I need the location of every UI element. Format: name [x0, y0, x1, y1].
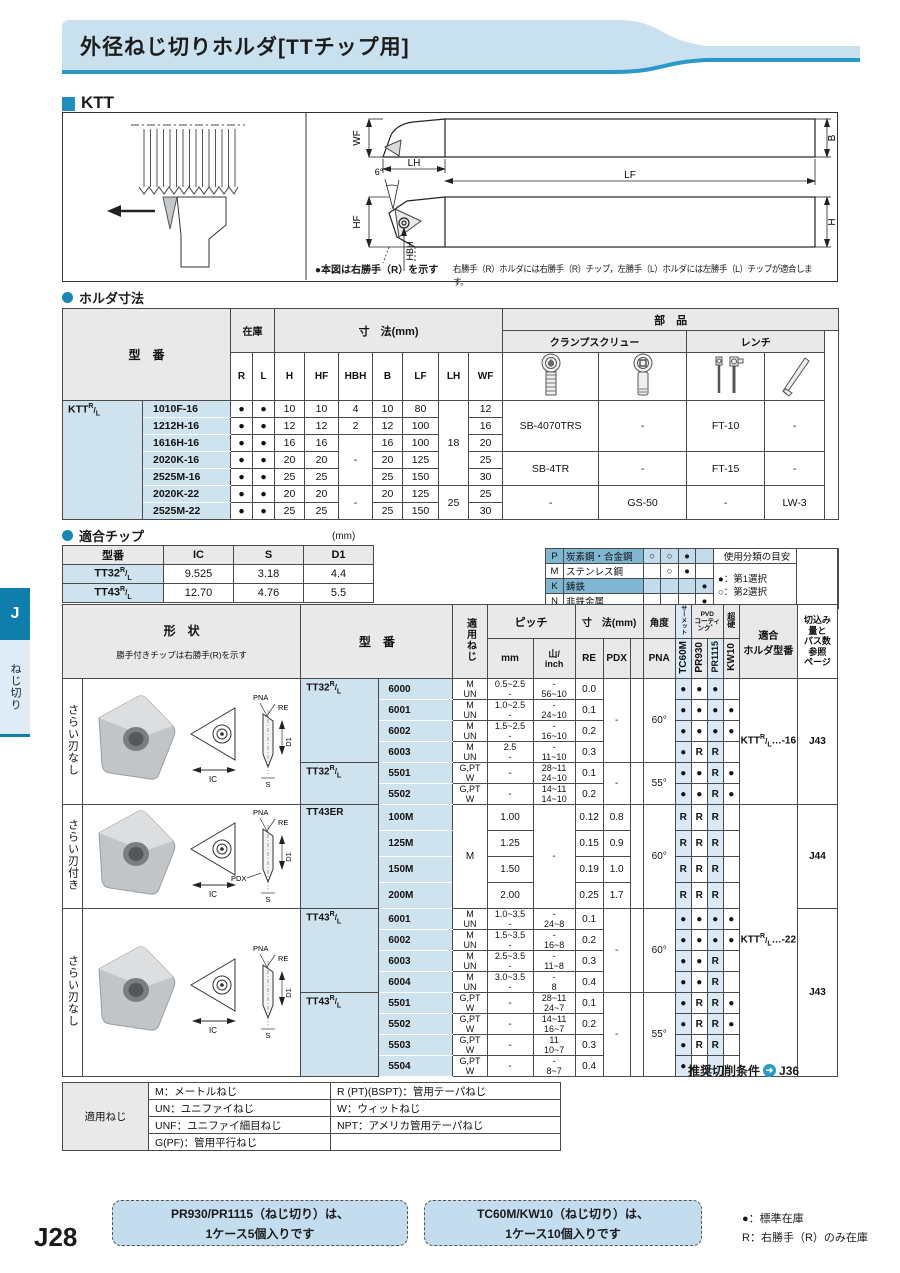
- table-cell: 25: [373, 503, 403, 520]
- element: RE: [278, 818, 288, 827]
- table-cell: 20: [275, 452, 305, 469]
- table-cell: [723, 679, 739, 700]
- table-cell: 16: [305, 435, 339, 452]
- table-cell: R: [675, 831, 691, 857]
- chip-model-prefix: TT32RL: [301, 763, 379, 805]
- element: R: [330, 681, 335, 688]
- element: [220, 847, 224, 851]
- table-cell: ●: [253, 469, 275, 486]
- table-cell: 10: [275, 401, 305, 418]
- element: 量と: [798, 626, 837, 637]
- torx-screw-icon: [503, 353, 599, 401]
- note-box-pr930: PR930/PR1115（ねじ切り）は、1ケース5個入りです: [112, 1200, 408, 1246]
- table-cell: [661, 579, 679, 594]
- table-cell: 0.8: [603, 805, 630, 831]
- table-row: 適用ねじ M：メートルねじR (PT)(BSPT)：管用テーパねじ: [63, 1083, 561, 1100]
- table-cell: [723, 972, 739, 993]
- table-cell: 60°: [643, 805, 675, 909]
- element: 16~10: [534, 731, 575, 741]
- element: [445, 197, 815, 247]
- table-cell: D1: [304, 546, 374, 565]
- table-cell: ●: [675, 993, 691, 1014]
- arrow-icon: ➜: [763, 1064, 776, 1077]
- table-cell: ●: [231, 503, 253, 520]
- element: TT32: [306, 766, 329, 777]
- element: -: [534, 700, 575, 710]
- table-cell: 2.5~3.5-: [487, 951, 533, 972]
- element: L: [337, 688, 341, 695]
- table-cell: -: [599, 452, 687, 486]
- element: 11: [534, 1035, 575, 1045]
- ktt-section-title: KTT: [81, 93, 114, 113]
- element: [386, 185, 397, 186]
- table-cell: 型 番: [301, 605, 453, 679]
- section-bullet-icon: [62, 292, 73, 303]
- table-row: さらい刃なし IC PNA RE D1 S TT43RL 6001 MUN 1.…: [63, 909, 838, 930]
- table-cell: 100: [403, 435, 439, 452]
- chip-model-prefix: TT43RL: [301, 993, 379, 1077]
- chip-model-prefix: TT43ER: [301, 805, 379, 909]
- table-cell: W：ウィットねじ: [331, 1100, 561, 1117]
- table-cell: [723, 883, 739, 909]
- table-cell: -: [603, 909, 630, 993]
- dim-lh: LH: [408, 158, 421, 169]
- element: M: [453, 700, 486, 710]
- table-cell: ●: [675, 1014, 691, 1035]
- table-cell: 型 番: [63, 309, 231, 401]
- element: PNA: [253, 944, 268, 953]
- table-cell: 9.525: [164, 565, 234, 584]
- table-cell: -24~8: [533, 909, 575, 930]
- element: KTT: [68, 404, 88, 416]
- element: PNA: [253, 693, 268, 702]
- table-cell: 60°: [643, 909, 675, 993]
- element: 適合: [758, 631, 778, 642]
- table-cell: 1616H-16: [143, 435, 231, 452]
- table-cell: 角度: [643, 605, 675, 639]
- insert-shape-images: IC PNA RE D1 S PDX: [83, 805, 301, 909]
- element: M: [453, 909, 486, 919]
- table-cell: 6002: [379, 721, 453, 742]
- table-cell: MUN: [453, 742, 487, 763]
- table-cell: R: [707, 883, 723, 909]
- pvd-header: PVDコーティンク゛: [691, 605, 723, 639]
- element: UN: [453, 919, 486, 929]
- table-cell: 在庫: [231, 309, 275, 353]
- table-cell: 4.76: [234, 584, 304, 603]
- element: [177, 197, 226, 267]
- table-cell: ●: [723, 784, 739, 805]
- table-cell: ●: [675, 930, 691, 951]
- table-cell: R: [231, 353, 253, 401]
- table-cell: ●: [691, 972, 707, 993]
- table-cell: ステンレス鋼: [564, 564, 644, 579]
- recommended-conditions-page: J36: [779, 1064, 799, 1078]
- table-cell: 5502: [379, 784, 453, 805]
- table-cell: J43: [797, 679, 837, 805]
- element: [247, 873, 261, 878]
- element: [128, 732, 143, 746]
- element: 切込み: [798, 615, 837, 626]
- table-cell: G,PTW: [453, 784, 487, 805]
- table-cell: FT-10: [687, 401, 765, 452]
- chip-selection-table: 形 状勝手付きチップは右勝手(R)を示す 型 番 適用ねじ ピッチ 寸 法(mm…: [62, 604, 838, 1077]
- table-cell: R: [707, 763, 723, 784]
- element: 24~7: [534, 1003, 575, 1013]
- element: M: [453, 951, 486, 961]
- table-cell: 12.70: [164, 584, 234, 603]
- table-cell: ●: [675, 1035, 691, 1056]
- table-cell: ●: [707, 930, 723, 951]
- element: RE: [278, 703, 288, 712]
- table-cell: PNA: [643, 639, 675, 679]
- element: M: [453, 721, 486, 731]
- table-cell: ●: [231, 418, 253, 435]
- table-cell: J43: [797, 909, 837, 1077]
- element: 勝手付きチップは右勝手(R)を示す: [63, 649, 300, 661]
- table-cell: [696, 549, 714, 564]
- table-row: 型 番 在庫 寸 法(mm) 部 品: [63, 309, 839, 331]
- table-cell: ●: [691, 700, 707, 721]
- table-cell: GS-50: [599, 486, 687, 520]
- table-cell: R: [707, 831, 723, 857]
- table-cell: ●: [723, 930, 739, 951]
- grade-pr930: PR930: [691, 639, 707, 679]
- table-cell: MUN: [453, 679, 487, 700]
- table-cell: R: [691, 1014, 707, 1035]
- element: 16~7: [534, 1024, 575, 1034]
- table-cell: 6003: [379, 742, 453, 763]
- table-cell: -: [487, 993, 533, 1014]
- table-cell: 1.0: [603, 857, 630, 883]
- element: [128, 847, 143, 861]
- table-cell: 150: [403, 469, 439, 486]
- element: 適用ねじ M：メートルねじR (PT)(BSPT)：管用テーパねじ UN：ユニフ…: [63, 1083, 561, 1151]
- table-cell: 6004: [379, 972, 453, 993]
- element: UN: [453, 961, 486, 971]
- table-cell: ●: [691, 721, 707, 742]
- insert-shape-drawing: IC PNA RE D1 S: [85, 690, 299, 790]
- table-cell: B: [373, 353, 403, 401]
- table-cell: 55°: [643, 763, 675, 805]
- element: 1.0~3.5: [488, 909, 533, 919]
- table-cell: 100M: [379, 805, 453, 831]
- table-cell: [630, 639, 643, 679]
- table-cell: 25: [305, 469, 339, 486]
- table-cell: ●: [675, 951, 691, 972]
- table-cell: [723, 951, 739, 972]
- chip-dimension-table: 型番ICSD1 TT32RL 9.5253.184.4 TT43RL 12.70…: [62, 545, 374, 603]
- element: -: [488, 731, 533, 741]
- element: UN: [453, 710, 486, 720]
- element: さらい刃なし: [65, 955, 81, 1027]
- element: [107, 205, 121, 217]
- table-cell: 1.5~3.5-: [487, 930, 533, 951]
- table-cell: 20: [275, 486, 305, 503]
- element: W: [453, 1003, 486, 1013]
- table-row: TT43RL 12.704.765.5: [63, 584, 374, 603]
- table-cell: IC: [164, 546, 234, 565]
- element: 型 番 在庫 寸 法(mm) 部 品 クランプスクリュー レンチ RL HHFH…: [63, 309, 839, 520]
- table-cell: ●: [253, 486, 275, 503]
- element: TT43: [306, 996, 329, 1007]
- table-cell: 部 品: [503, 309, 839, 331]
- element: UN: [453, 752, 486, 762]
- chip-section-heading: 適合チップ: [62, 526, 144, 545]
- table-cell: MUN: [453, 909, 487, 930]
- table-cell: ●: [253, 435, 275, 452]
- element: G,PT: [453, 1014, 486, 1024]
- element: L: [337, 772, 341, 779]
- cermet-header: サーメット: [675, 605, 691, 639]
- table-cell: レンチ: [687, 331, 825, 353]
- table-cell: [696, 564, 714, 579]
- table-cell: 鋳鉄: [564, 579, 644, 594]
- table-cell: 25: [275, 469, 305, 486]
- table-cell: 6001: [379, 909, 453, 930]
- element: G,PT: [453, 1056, 486, 1066]
- table-cell: 12: [305, 418, 339, 435]
- table-cell: MUN: [453, 930, 487, 951]
- element: P炭素鋼・合金鋼 ○○● 使用分類の目安 Mステンレス鋼 ○● ●：第1選択○：…: [546, 549, 839, 609]
- table-cell: G(PF)：管用平行ねじ: [149, 1134, 331, 1151]
- table-cell: -56~10: [533, 679, 575, 700]
- element: IC: [209, 890, 217, 899]
- table-cell: [723, 1035, 739, 1056]
- element: TT43: [94, 586, 120, 598]
- insert-shape-drawing: IC PNA RE D1 S: [85, 941, 299, 1041]
- element: S: [265, 1031, 270, 1040]
- table-cell: -11~8: [533, 951, 575, 972]
- diagram-note-left: ●本図は右勝手（R）を示す: [315, 261, 438, 276]
- chip-model: TT43RL: [63, 584, 164, 603]
- table-cell: ●: [691, 784, 707, 805]
- table-cell: R: [691, 1035, 707, 1056]
- table-cell: WF: [469, 353, 503, 401]
- element: KTT: [741, 736, 760, 747]
- table-cell: R: [691, 831, 707, 857]
- table-cell: 150: [403, 503, 439, 520]
- table-cell: 14~1116~7: [533, 1014, 575, 1035]
- element: -: [534, 742, 575, 752]
- table-cell: LH: [439, 353, 469, 401]
- table-cell: MUN: [453, 721, 487, 742]
- element: S: [265, 780, 270, 789]
- element: M: [453, 679, 486, 689]
- holder-model-prefix: KTTRL: [63, 401, 143, 520]
- element: ●：第1選択: [718, 574, 767, 585]
- element: -: [488, 982, 533, 992]
- table-cell: ●: [691, 763, 707, 784]
- table-cell: -24~10: [533, 700, 575, 721]
- element: UN: [453, 982, 486, 992]
- element: TT32: [94, 567, 120, 579]
- element: IC: [209, 775, 217, 784]
- chip-model-prefix: TT32RL: [301, 679, 379, 763]
- grade-kw10: KW10: [723, 639, 739, 679]
- table-cell: ●: [675, 972, 691, 993]
- element: サーメット: [679, 605, 688, 635]
- table-cell: 16: [275, 435, 305, 452]
- element: [385, 179, 393, 209]
- element: -: [534, 721, 575, 731]
- element: TT43: [306, 912, 329, 923]
- table-cell: 28~1124~7: [533, 993, 575, 1014]
- holder-section-title: ホルダ寸法: [79, 288, 144, 307]
- element: PVD: [701, 611, 714, 618]
- table-cell: ●: [675, 721, 691, 742]
- table-cell: ●: [675, 679, 691, 700]
- element: 56~10: [534, 689, 575, 699]
- element: -: [488, 961, 533, 971]
- table-cell: R: [707, 805, 723, 831]
- table-cell: ●: [707, 700, 723, 721]
- table-cell: 2020K-16: [143, 452, 231, 469]
- element: 1.0~2.5: [488, 700, 533, 710]
- table-cell: R: [707, 857, 723, 883]
- table-cell: P: [546, 549, 564, 564]
- element: 1ケース5個入りです: [206, 1227, 315, 1241]
- element: 1.5~3.5: [488, 930, 533, 940]
- element: [628, 353, 658, 397]
- table-cell: -16~10: [533, 721, 575, 742]
- table-cell: 30: [469, 503, 503, 520]
- table-cell: 5.5: [304, 584, 374, 603]
- element: さらい刃なし: [65, 704, 81, 776]
- note-box-tc60m: TC60M/KW10（ねじ切り）は、1ケース10個入りです: [424, 1200, 702, 1246]
- table-cell: R: [691, 883, 707, 909]
- element: パス数: [798, 636, 837, 647]
- table-cell: -: [599, 401, 687, 452]
- table-cell: J44: [797, 805, 837, 909]
- table-cell: 5504: [379, 1056, 453, 1077]
- table-cell: ●: [675, 742, 691, 763]
- table-cell: [679, 579, 696, 594]
- element: ねじ切り: [7, 663, 23, 711]
- table-cell: R: [707, 1014, 723, 1035]
- holder-diagram-box: WF B LH LF 6° HF HBH H ●本図は右勝手（R）を示す 右勝手…: [62, 112, 838, 282]
- table-cell: 5501: [379, 763, 453, 784]
- table-cell: 60°: [643, 679, 675, 763]
- table-cell: [644, 579, 661, 594]
- table-cell: 125: [403, 452, 439, 469]
- element: 適用ねじ: [463, 618, 478, 662]
- dim-hf: HF: [352, 215, 363, 228]
- table-cell: 0.12: [575, 805, 603, 831]
- table-cell: 0.1: [575, 909, 603, 930]
- element: 山/: [548, 649, 560, 659]
- table-cell: 0.1: [575, 763, 603, 784]
- table-row: TT32RL 9.5253.184.4: [63, 565, 374, 584]
- chip-unit-label: (mm): [332, 531, 355, 542]
- table-cell: G,PTW: [453, 1035, 487, 1056]
- table-cell: 25: [305, 503, 339, 520]
- table-cell: ●: [231, 486, 253, 503]
- page-number: J28: [34, 1222, 77, 1253]
- element: 3.0~3.5: [488, 972, 533, 982]
- table-cell: 0.1: [575, 993, 603, 1014]
- table-cell: -: [487, 763, 533, 784]
- table-cell: G,PTW: [453, 993, 487, 1014]
- table-cell: ○: [661, 564, 679, 579]
- top-view-dimensions: [369, 179, 831, 271]
- dim-hbh: HBH: [405, 241, 415, 260]
- element: [139, 187, 238, 194]
- table-cell: 炭素鋼・合金鋼: [564, 549, 644, 564]
- element: TT32: [306, 682, 329, 693]
- table-cell: -: [487, 1014, 533, 1035]
- table-cell: -: [603, 679, 630, 763]
- table-cell: ●: [231, 469, 253, 486]
- hex-socket-screw-icon: [599, 353, 687, 401]
- element: 28~11: [534, 763, 575, 773]
- element: TC60M/KW10（ねじ切り）は、: [477, 1207, 649, 1221]
- element: -: [488, 940, 533, 950]
- table-cell: 1010F-16: [143, 401, 231, 418]
- table-cell: ●: [253, 503, 275, 520]
- table-cell: 1.00: [487, 805, 533, 831]
- table-cell: ●: [679, 564, 696, 579]
- element: W: [453, 1045, 486, 1055]
- table-cell: FT-15: [687, 452, 765, 486]
- group-label: さらい刃付き: [63, 805, 83, 909]
- table-cell: ●: [723, 700, 739, 721]
- table-cell: R: [691, 993, 707, 1014]
- dim-h: H: [827, 218, 836, 225]
- shape-header: 形 状勝手付きチップは右勝手(R)を示す: [63, 605, 301, 679]
- table-cell: 1212H-16: [143, 418, 231, 435]
- table-cell: -: [765, 401, 825, 452]
- table-cell: UNF：ユニファイ細目ねじ: [149, 1117, 331, 1134]
- table-cell: 1.7: [603, 883, 630, 909]
- element: KTT: [741, 935, 760, 946]
- table-cell: RE: [575, 639, 603, 679]
- table-cell: M: [546, 564, 564, 579]
- element: M: [453, 742, 486, 752]
- element: 11~10: [534, 752, 575, 762]
- dim-b: B: [827, 134, 836, 141]
- stock-note-standard: ●：標準在庫: [742, 1210, 804, 1226]
- element: 1ケース10個入りです: [505, 1227, 620, 1241]
- table-cell: ●: [691, 909, 707, 930]
- table-cell: ●: [679, 549, 696, 564]
- element: PNA: [253, 808, 268, 817]
- element: [738, 359, 743, 363]
- element: L: [337, 1002, 341, 1009]
- table-cell: SB-4070TRS: [503, 401, 599, 452]
- table-cell: 0.1: [575, 700, 603, 721]
- element: 8~7: [534, 1066, 575, 1076]
- element: 11~8: [534, 961, 575, 971]
- element: R: [330, 911, 335, 918]
- table-cell: M: [453, 805, 487, 909]
- table-cell: R: [707, 993, 723, 1014]
- table-cell: ●: [707, 721, 723, 742]
- table-cell: K: [546, 579, 564, 594]
- table-cell: 2020K-22: [143, 486, 231, 503]
- element: [385, 140, 401, 156]
- grade-tc60m: TC60M: [675, 639, 691, 679]
- table-cell: L: [253, 353, 275, 401]
- element: 1.5~2.5: [488, 721, 533, 731]
- table-cell: HF: [305, 353, 339, 401]
- table-cell: 20: [373, 486, 403, 503]
- group-label: さらい刃なし: [63, 909, 83, 1077]
- table-cell: LW-3: [765, 486, 825, 520]
- catalog-page: { "tab": {"letter":"J","label":"ねじ切り"}, …: [0, 0, 900, 1273]
- table-cell: 適用ねじ: [63, 1083, 149, 1151]
- element: L: [337, 918, 341, 925]
